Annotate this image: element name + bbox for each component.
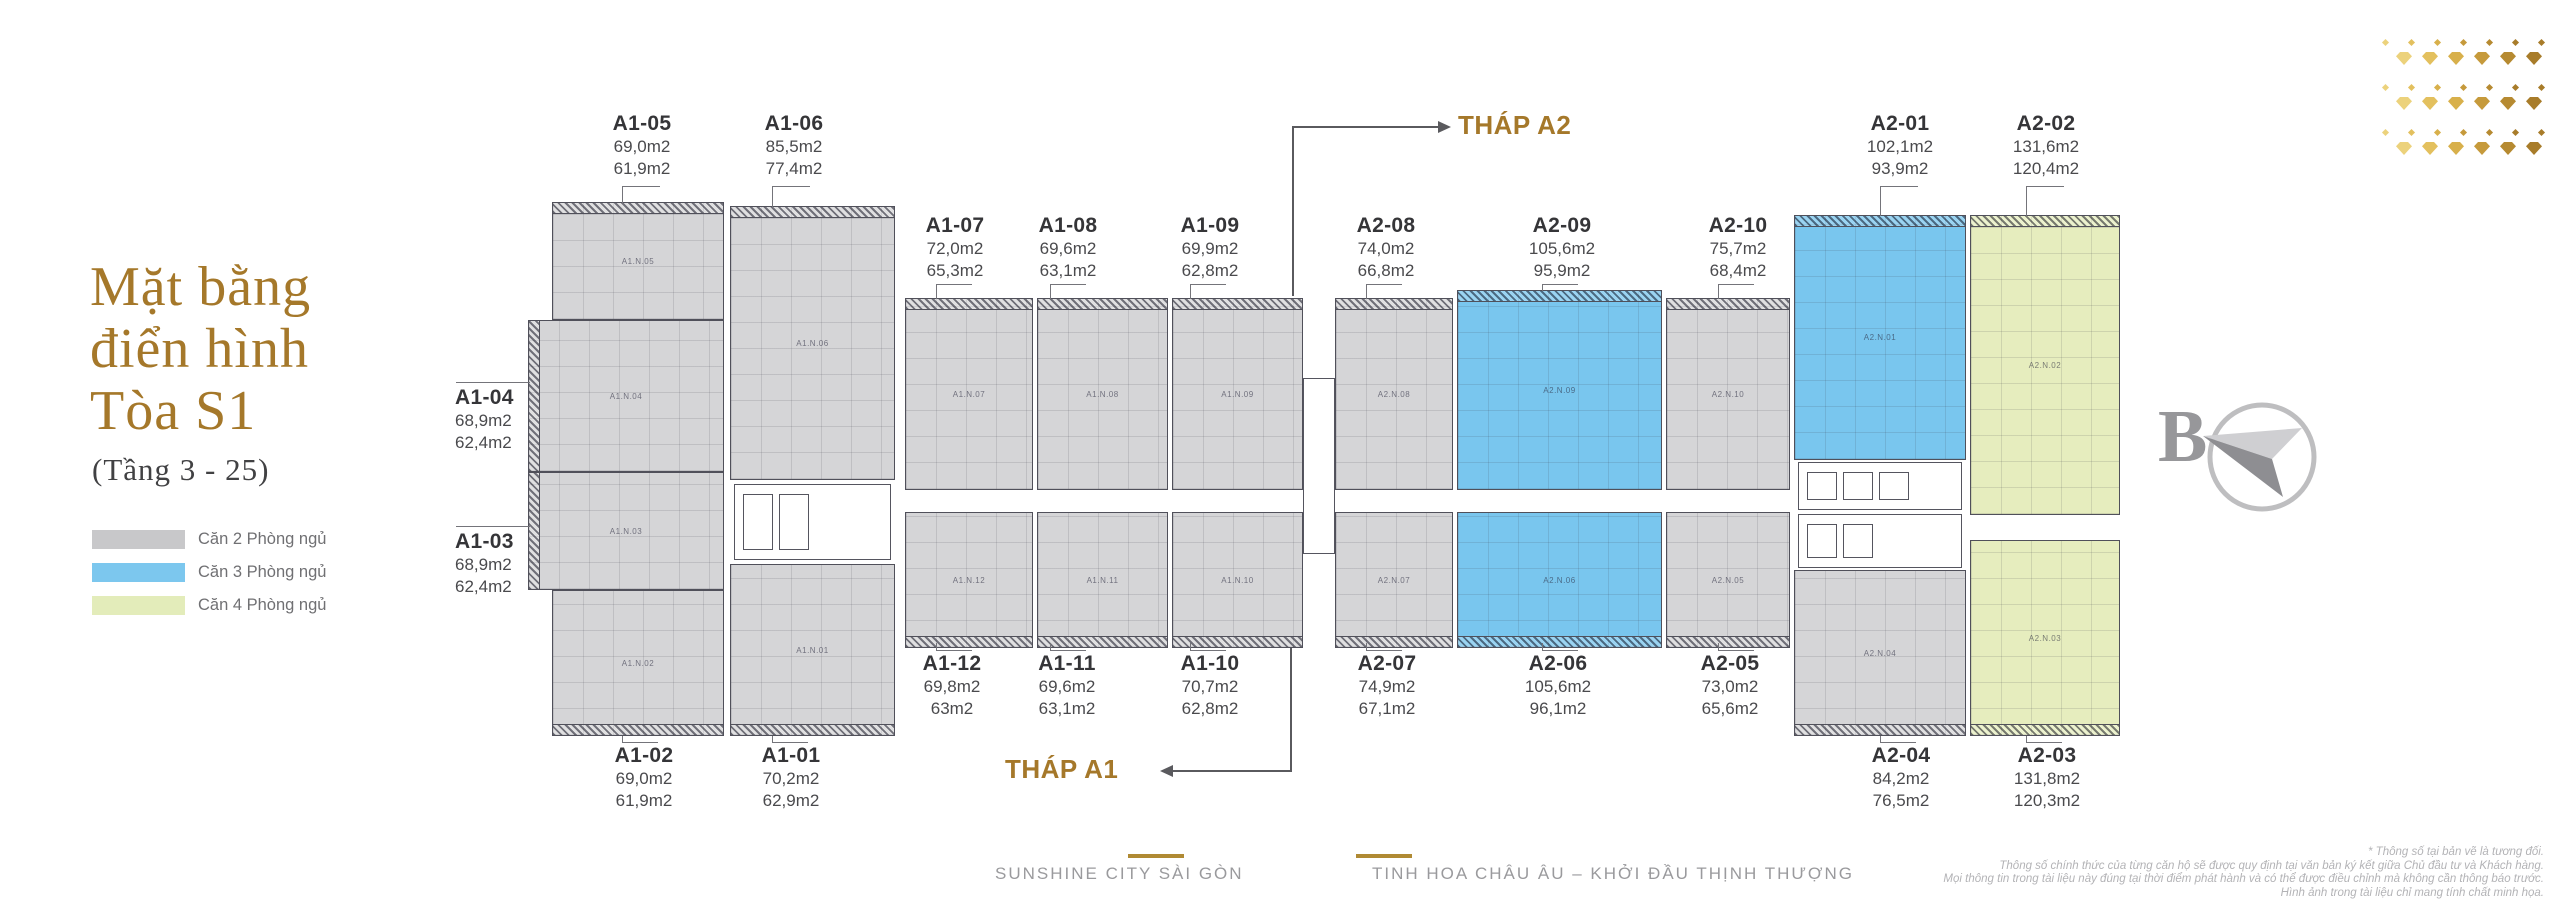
leader-line: [2026, 742, 2062, 743]
leader-line: [1050, 650, 1086, 651]
unit-block-A1-08: A1.N.08: [1037, 298, 1168, 490]
leader-line: [622, 736, 623, 743]
balcony-hatch: [1173, 299, 1302, 310]
leader-line: [1542, 650, 1578, 651]
unit-plan-code: A1.N.09: [1173, 299, 1302, 489]
elevator-shaft: [1843, 524, 1873, 558]
unit-name: A1-04: [455, 386, 615, 410]
elevator-shaft: [779, 494, 809, 550]
unit-name: A2-07: [1307, 652, 1467, 676]
elevator-shaft: [1807, 524, 1837, 558]
unit-name: A2-05: [1650, 652, 1810, 676]
balcony-hatch: [553, 203, 723, 214]
balcony-hatch: [1971, 216, 2119, 227]
tower-a2-label: THÁP A2: [1458, 110, 1571, 141]
compass-arrow-icon: [2196, 396, 2328, 520]
leader-line: [1542, 284, 1543, 291]
balcony-hatch: [1667, 636, 1789, 647]
unit-plan-code: A1.N.07: [906, 299, 1032, 489]
unit-plan-code: A2.N.02: [1971, 216, 2119, 514]
tower-a1-arrowhead-icon: [1160, 765, 1173, 777]
unit-plan-code: A2.N.06: [1458, 513, 1661, 647]
leader-line: [936, 643, 937, 651]
balcony-hatch: [731, 207, 894, 218]
unit-area-gross: 74,9m2: [1307, 676, 1467, 698]
unit-plan-code: A2.N.10: [1667, 299, 1789, 489]
disclaimer-line: Hình ảnh trong tài liệu chỉ mang tính ch…: [1924, 887, 2544, 901]
leader-line: [1718, 284, 1754, 285]
unit-block-A1-07: A1.N.07: [905, 298, 1033, 490]
leader-line: [1880, 186, 1918, 187]
leader-line: [622, 742, 658, 743]
unit-name: A1-03: [455, 530, 615, 554]
elevator-shaft: [743, 494, 773, 550]
unit-name: A2-01: [1820, 112, 1980, 136]
leader-line: [2026, 736, 2027, 743]
balcony-hatch: [1173, 636, 1302, 647]
balcony-hatch: [1458, 636, 1661, 647]
unit-area-net: 61,9m2: [564, 790, 724, 812]
elevator-shaft: [1879, 472, 1909, 500]
unit-block-A1-09: A1.N.09: [1172, 298, 1303, 490]
unit-area-net: 76,5m2: [1821, 790, 1981, 812]
unit-label-A2-03: A2-03131,8m2120,3m2: [1967, 744, 2127, 811]
unit-area-gross: 70,2m2: [711, 768, 871, 790]
unit-name: A2-04: [1821, 744, 1981, 768]
a1-core: [734, 484, 891, 560]
unit-name: A2-06: [1478, 652, 1638, 676]
unit-area-gross: 102,1m2: [1820, 136, 1980, 158]
unit-name: A1-05: [562, 112, 722, 136]
leader-line: [456, 526, 530, 527]
unit-label-A2-05: A2-0573,0m265,6m2: [1650, 652, 1810, 719]
disclaimer-text: * Thông số tại bản vẽ là tương đối. Thôn…: [1924, 846, 2544, 900]
unit-area-net: 120,4m2: [1966, 158, 2126, 180]
unit-area-net: 95,9m2: [1482, 260, 1642, 282]
leader-line: [1718, 284, 1719, 299]
leader-line: [1366, 643, 1367, 651]
unit-area-gross: 74,0m2: [1306, 238, 1466, 260]
unit-area-net: 62,8m2: [1130, 260, 1290, 282]
leader-line: [1718, 643, 1719, 651]
unit-area-gross: 69,0m2: [562, 136, 722, 158]
unit-label-A1-04: A1-0468,9m262,4m2: [455, 386, 615, 453]
unit-area-gross: 69,6m2: [987, 676, 1147, 698]
leader-line: [1050, 284, 1051, 299]
unit-block-A1-01: A1.N.01: [730, 564, 895, 736]
elevator-shaft: [1843, 472, 1873, 500]
unit-area-net: 62,8m2: [1130, 698, 1290, 720]
leader-line: [1190, 650, 1226, 651]
unit-label-A2-09: A2-09105,6m295,9m2: [1482, 214, 1642, 281]
unit-area-gross: 105,6m2: [1482, 238, 1642, 260]
unit-plan-code: A1.N.11: [1038, 513, 1167, 647]
unit-area-net: 62,4m2: [455, 432, 615, 454]
unit-label-A2-08: A2-0874,0m266,8m2: [1306, 214, 1466, 281]
balcony-hatch: [1336, 636, 1452, 647]
balcony-hatch: [1038, 636, 1167, 647]
brand-tagline: TINH HOA CHÂU ÂU – KHỞI ĐẦU THỊNH THƯỢNG: [1372, 864, 1738, 884]
unit-area-gross: 70,7m2: [1130, 676, 1290, 698]
unit-area-net: 63,1m2: [988, 260, 1148, 282]
unit-area-net: 65,6m2: [1650, 698, 1810, 720]
tagline-divider-bar: [1356, 854, 1412, 858]
unit-block-A2-09: A2.N.09: [1457, 290, 1662, 490]
unit-name: A2-09: [1482, 214, 1642, 238]
brand-sunshine-city: SUNSHINE CITY SÀI GÒN: [995, 864, 1207, 884]
unit-plan-code: A2.N.01: [1795, 216, 1965, 459]
leader-line: [2026, 186, 2027, 216]
unit-label-A2-06: A2-06105,6m296,1m2: [1478, 652, 1638, 719]
unit-block-A2-03: A2.N.03: [1970, 540, 2120, 736]
balcony-hatch: [1795, 724, 1965, 735]
unit-area-gross: 68,9m2: [455, 554, 615, 576]
unit-plan-code: A1.N.05: [553, 203, 723, 319]
unit-label-A2-02: A2-02131,6m2120,4m2: [1966, 112, 2126, 179]
leader-line: [1880, 742, 1916, 743]
unit-label-A1-09: A1-0969,9m262,8m2: [1130, 214, 1290, 281]
leader-line: [2026, 186, 2064, 187]
tower-a1-arrow-stem: [1290, 648, 1292, 772]
leader-line: [772, 736, 773, 743]
unit-area-gross: 85,5m2: [714, 136, 874, 158]
leader-line: [1366, 650, 1402, 651]
unit-label-A1-08: A1-0869,6m263,1m2: [988, 214, 1148, 281]
unit-name: A1-11: [987, 652, 1147, 676]
unit-plan-code: A2.N.08: [1336, 299, 1452, 489]
unit-plan-code: A2.N.03: [1971, 541, 2119, 735]
leader-line: [772, 742, 808, 743]
unit-label-A1-10: A1-1070,7m262,8m2: [1130, 652, 1290, 719]
leader-line: [1190, 284, 1191, 299]
balcony-hatch: [906, 636, 1032, 647]
balcony-hatch: [1795, 216, 1965, 227]
unit-area-net: 93,9m2: [1820, 158, 1980, 180]
leader-line: [1366, 284, 1402, 285]
leader-line: [1542, 284, 1578, 285]
unit-area-net: 67,1m2: [1307, 698, 1467, 720]
unit-label-A2-07: A2-0774,9m267,1m2: [1307, 652, 1467, 719]
unit-area-gross: 69,6m2: [988, 238, 1148, 260]
leader-line: [772, 186, 810, 187]
brand-divider-bar: [1128, 854, 1184, 858]
unit-label-A2-04: A2-0484,2m276,5m2: [1821, 744, 1981, 811]
unit-block-A2-06: A2.N.06: [1457, 512, 1662, 648]
unit-plan-code: A2.N.04: [1795, 571, 1965, 735]
unit-area-net: 120,3m2: [1967, 790, 2127, 812]
balcony-hatch: [906, 299, 1032, 310]
balcony-hatch: [731, 724, 894, 735]
unit-label-A1-11: A1-1169,6m263,1m2: [987, 652, 1147, 719]
unit-area-gross: 69,9m2: [1130, 238, 1290, 260]
unit-name: A1-01: [711, 744, 871, 768]
unit-area-net: 66,8m2: [1306, 260, 1466, 282]
unit-area-gross: 84,2m2: [1821, 768, 1981, 790]
tower-a1-label: THÁP A1: [1005, 754, 1118, 785]
leader-line: [1366, 284, 1367, 299]
disclaimer-line: Thông số chính thức của từng căn hộ sẽ đ…: [1924, 860, 2544, 874]
leader-line: [772, 186, 773, 207]
balcony-hatch: [1458, 291, 1661, 302]
unit-block-A2-05: A2.N.05: [1666, 512, 1790, 648]
unit-area-net: 63,1m2: [987, 698, 1147, 720]
balcony-hatch: [1971, 724, 2119, 735]
unit-plan-code: A1.N.02: [553, 591, 723, 735]
link-bridge: [1303, 378, 1335, 554]
leader-line: [1190, 284, 1226, 285]
unit-block-A2-04: A2.N.04: [1794, 570, 1966, 736]
unit-area-net: 62,9m2: [711, 790, 871, 812]
unit-plan-code: A1.N.08: [1038, 299, 1167, 489]
tower-a2-arrowhead-icon: [1438, 121, 1451, 133]
unit-block-A1-05: A1.N.05: [552, 202, 724, 320]
unit-plan-code: A1.N.12: [906, 513, 1032, 647]
unit-name: A1-09: [1130, 214, 1290, 238]
unit-name: A2-02: [1966, 112, 2126, 136]
leader-line: [1880, 736, 1881, 743]
leader-line: [936, 650, 972, 651]
leader-line: [1190, 643, 1191, 651]
unit-name: A1-08: [988, 214, 1148, 238]
unit-name: A2-08: [1306, 214, 1466, 238]
elevator-shaft: [1807, 472, 1837, 500]
unit-block-A2-08: A2.N.08: [1335, 298, 1453, 490]
tower-a2-arrow-line: [1292, 126, 1440, 128]
unit-plan-code: A1.N.10: [1173, 513, 1302, 647]
balcony-hatch: [1038, 299, 1167, 310]
unit-label-A1-02: A1-0269,0m261,9m2: [564, 744, 724, 811]
leader-line: [936, 284, 937, 299]
unit-name: A1-02: [564, 744, 724, 768]
unit-block-A1-12: A1.N.12: [905, 512, 1033, 648]
unit-block-A2-07: A2.N.07: [1335, 512, 1453, 648]
disclaimer-line: Mọi thông tin trong tài liệu này đúng tạ…: [1924, 873, 2544, 887]
leader-line: [456, 382, 530, 383]
balcony-hatch: [553, 724, 723, 735]
unit-block-A1-10: A1.N.10: [1172, 512, 1303, 648]
leader-line: [622, 186, 660, 187]
unit-block-A1-02: A1.N.02: [552, 590, 724, 736]
unit-area-net: 77,4m2: [714, 158, 874, 180]
tower-a1-arrow-line: [1172, 770, 1292, 772]
leader-line: [1880, 186, 1881, 216]
balcony-hatch: [1667, 299, 1789, 310]
tower-a2-arrow-stem: [1292, 126, 1294, 296]
unit-plan-code: A2.N.07: [1336, 513, 1452, 647]
unit-label-A2-01: A2-01102,1m293,9m2: [1820, 112, 1980, 179]
unit-area-gross: 68,9m2: [455, 410, 615, 432]
unit-label-A1-01: A1-0170,2m262,9m2: [711, 744, 871, 811]
unit-block-A1-06: A1.N.06: [730, 206, 895, 480]
balcony-hatch: [1336, 299, 1452, 310]
unit-block-A2-10: A2.N.10: [1666, 298, 1790, 490]
unit-area-gross: 131,8m2: [1967, 768, 2127, 790]
unit-area-net: 96,1m2: [1478, 698, 1638, 720]
unit-block-A2-02: A2.N.02: [1970, 215, 2120, 515]
unit-plan-code: A2.N.05: [1667, 513, 1789, 647]
a2-core-bottom: [1798, 514, 1962, 568]
unit-area-gross: 131,6m2: [1966, 136, 2126, 158]
unit-area-gross: 69,0m2: [564, 768, 724, 790]
leader-line: [622, 186, 623, 203]
unit-block-A2-01: A2.N.01: [1794, 215, 1966, 460]
disclaimer-line: * Thông số tại bản vẽ là tương đối.: [1924, 846, 2544, 860]
leader-line: [936, 284, 972, 285]
unit-name: A2-03: [1967, 744, 2127, 768]
leader-line: [1718, 650, 1754, 651]
unit-area-gross: 105,6m2: [1478, 676, 1638, 698]
unit-block-A1-11: A1.N.11: [1037, 512, 1168, 648]
leader-line: [1050, 284, 1086, 285]
unit-area-net: 61,9m2: [562, 158, 722, 180]
unit-name: A1-06: [714, 112, 874, 136]
unit-plan-code: A2.N.09: [1458, 291, 1661, 489]
unit-label-A1-03: A1-0368,9m262,4m2: [455, 530, 615, 597]
unit-label-A1-06: A1-0685,5m277,4m2: [714, 112, 874, 179]
unit-label-A1-05: A1-0569,0m261,9m2: [562, 112, 722, 179]
a2-core-top: [1798, 462, 1962, 510]
unit-plan-code: A1.N.06: [731, 207, 894, 479]
leader-line: [1542, 643, 1543, 651]
unit-name: A1-10: [1130, 652, 1290, 676]
unit-plan-code: A1.N.01: [731, 565, 894, 735]
leader-line: [1050, 643, 1051, 651]
unit-area-gross: 73,0m2: [1650, 676, 1810, 698]
